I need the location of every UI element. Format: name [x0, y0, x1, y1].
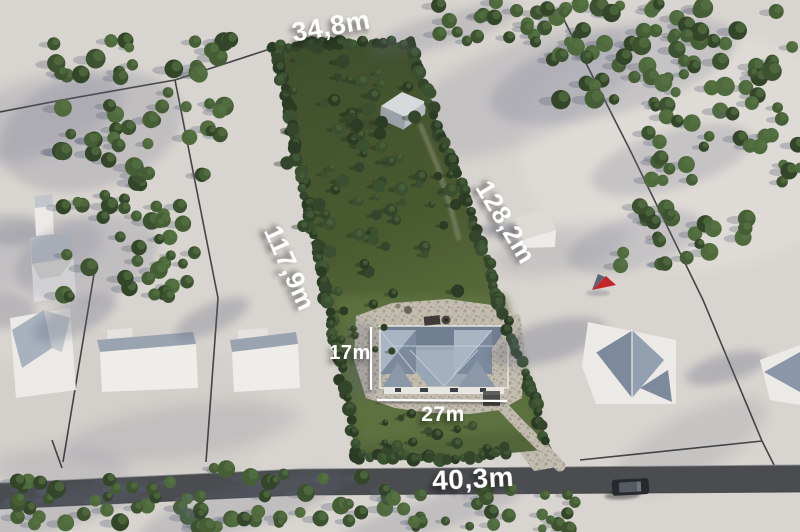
plot-bush-highlight	[334, 186, 339, 191]
tree-highlight	[708, 132, 714, 138]
plot-bush	[381, 242, 390, 251]
tree-highlight	[692, 61, 699, 68]
hedge-bush-highlight	[299, 172, 305, 178]
hedge-bush	[347, 415, 357, 425]
tree-highlight	[228, 33, 237, 42]
fire-pit-center	[444, 318, 448, 322]
plot-bush-highlight	[471, 422, 476, 427]
tree-highlight	[574, 39, 584, 49]
plot-bush	[354, 162, 364, 172]
plot-bush-highlight	[410, 410, 415, 415]
tree-highlight	[744, 81, 752, 89]
hedge-bush-highlight	[504, 325, 511, 332]
tree-highlight	[64, 516, 73, 525]
dimension-line-house-width	[377, 400, 507, 401]
plot-bush-highlight	[392, 289, 397, 294]
plot-bush	[388, 347, 395, 354]
tree-highlight	[659, 152, 667, 160]
tree-highlight	[322, 474, 328, 480]
plot-bush-highlight	[375, 194, 379, 198]
tree-highlight	[466, 37, 472, 43]
hedge-bush-highlight	[360, 36, 366, 42]
tree-highlight	[658, 235, 665, 242]
hedge-bush-highlight	[463, 185, 469, 191]
dimension-label-road: 40,3m	[431, 461, 514, 496]
tree-highlight	[731, 108, 739, 116]
garden-rock	[396, 304, 401, 309]
hedge-bush-highlight	[466, 197, 471, 202]
tree-highlight	[347, 499, 353, 505]
hedge-bush-highlight	[354, 439, 360, 445]
hedge-bush-highlight	[411, 454, 419, 462]
tree-highlight	[525, 23, 532, 30]
plot-bush	[320, 170, 328, 178]
hedge-bush-highlight	[454, 455, 459, 460]
tree-highlight	[645, 58, 655, 68]
tree-highlight	[101, 212, 108, 219]
tree-highlight	[194, 36, 201, 43]
tree-highlight	[664, 201, 673, 210]
tree-highlight	[359, 506, 367, 514]
tree-highlight	[438, 28, 446, 36]
tree-highlight	[745, 211, 755, 221]
tree-highlight	[750, 97, 758, 105]
tree-highlight	[273, 476, 279, 482]
plot-bush	[339, 306, 348, 315]
tree-highlight	[392, 492, 400, 500]
tree-highlight	[89, 134, 97, 142]
tree-highlight	[54, 56, 64, 66]
tree-highlight	[585, 52, 591, 58]
tree-highlight	[754, 59, 763, 68]
tree-highlight	[155, 201, 161, 207]
tree-highlight	[668, 210, 675, 217]
plot-bush	[375, 116, 388, 129]
plot-bush-highlight	[292, 87, 296, 91]
tree-highlight	[65, 250, 71, 256]
plot-bush-highlight	[399, 184, 406, 191]
tree-highlight	[613, 95, 619, 101]
hedge-bush-highlight	[329, 320, 334, 325]
plot-bush-highlight	[435, 430, 441, 436]
tree-highlight	[735, 23, 745, 33]
tree-highlight	[123, 194, 129, 200]
tree-highlight	[707, 244, 717, 254]
tree-highlight	[544, 491, 549, 496]
tree-highlight	[546, 2, 554, 10]
plot-bush	[362, 102, 376, 116]
hedge-bush-highlight	[528, 386, 535, 393]
tree-highlight	[609, 5, 619, 15]
hedge-bush-highlight	[330, 329, 336, 335]
plot-bush-highlight	[301, 222, 307, 228]
garden-rock	[404, 306, 412, 314]
plot-bush-highlight	[363, 151, 367, 155]
tree-highlight	[534, 37, 540, 43]
hedge-bush-highlight	[351, 40, 357, 46]
hedge-bush	[541, 436, 550, 445]
plot-bush-highlight	[380, 81, 384, 85]
tree-highlight	[132, 159, 142, 169]
tree-highlight	[119, 232, 125, 238]
tree-highlight	[153, 289, 160, 296]
tree-highlight	[479, 11, 486, 18]
tree-highlight	[61, 200, 69, 208]
window	[395, 388, 401, 392]
tree-highlight	[541, 525, 546, 530]
tree-highlight	[61, 144, 71, 154]
tree-highlight	[774, 5, 782, 13]
tree-highlight	[622, 248, 629, 255]
hedge-bush-highlight	[278, 40, 284, 46]
tree-highlight	[650, 173, 659, 182]
tree-highlight	[751, 68, 757, 74]
plot-bush	[320, 99, 329, 108]
tree-highlight	[683, 56, 690, 63]
plot-bush-highlight	[330, 164, 334, 168]
plot-bush-highlight	[379, 142, 385, 148]
tree-highlight	[560, 49, 567, 56]
plot-bush	[368, 234, 379, 245]
hedge-bush	[537, 420, 547, 430]
tree-highlight	[17, 494, 24, 501]
plot-bush-highlight	[371, 90, 378, 97]
tree-highlight	[619, 259, 627, 267]
tree-highlight	[563, 8, 569, 14]
hedge-bush-highlight	[442, 143, 448, 149]
plot-bush	[286, 123, 299, 136]
tree-highlight	[93, 50, 104, 61]
tree-highlight	[684, 157, 693, 166]
plot-bush-highlight	[354, 332, 358, 336]
plot-bush	[434, 172, 443, 181]
tree-highlight	[738, 131, 747, 140]
plot-bush-highlight	[431, 201, 435, 205]
tree-highlight	[91, 146, 100, 155]
plot-bush-highlight	[411, 438, 416, 443]
tree-highlight	[661, 75, 671, 85]
tree-highlight	[114, 483, 120, 489]
tree-highlight	[28, 502, 36, 510]
plot-bush-highlight	[449, 171, 453, 175]
hedge-bush-highlight	[416, 67, 424, 75]
tree-highlight	[658, 136, 666, 144]
hedge-bush-highlight	[479, 244, 486, 251]
tree-highlight	[69, 130, 75, 136]
tree-highlight	[568, 37, 574, 43]
tree-highlight	[135, 502, 142, 509]
tree-highlight	[205, 519, 214, 528]
tree-highlight	[199, 491, 206, 498]
tree-highlight	[711, 222, 720, 231]
tree-highlight	[263, 491, 270, 498]
dimension-label-house-depth: 17m	[329, 342, 371, 364]
tree-highlight	[507, 510, 515, 518]
tree-highlight	[16, 475, 25, 484]
tree-highlight	[37, 511, 44, 518]
hedge-bush	[425, 453, 435, 463]
tree-highlight	[756, 88, 765, 97]
tree-highlight	[218, 128, 226, 136]
tree-highlight	[127, 121, 135, 129]
tree-highlight	[685, 18, 695, 28]
plot-bush-highlight	[337, 288, 342, 293]
tree-highlight	[776, 103, 782, 109]
tree-highlight	[171, 61, 181, 71]
plot-bush-highlight	[324, 210, 329, 215]
hedge-bush-highlight	[491, 281, 496, 286]
tree-highlight	[38, 477, 46, 485]
tree-highlight	[147, 168, 154, 175]
plot-bush	[351, 119, 363, 131]
plot-bush	[374, 128, 386, 140]
plot-bush-highlight	[385, 420, 388, 423]
tree-highlight	[146, 139, 152, 145]
tree-highlight	[676, 116, 683, 123]
plot-bush	[439, 221, 448, 230]
tree-highlight	[76, 198, 82, 204]
tree-highlight	[619, 1, 625, 7]
tree-highlight	[131, 482, 138, 489]
hedge-bush-highlight	[352, 427, 357, 432]
tree-highlight	[600, 74, 608, 82]
tree-highlight	[128, 43, 134, 49]
tree-highlight	[347, 515, 354, 522]
plot-bush	[370, 228, 378, 236]
tree-highlight	[638, 199, 647, 208]
tree-highlight	[758, 140, 766, 148]
tree-highlight	[169, 251, 175, 257]
plot-bush-highlight	[332, 96, 338, 102]
hedge-bush-highlight	[301, 184, 306, 189]
dimension-label-house-width: 27m	[421, 403, 465, 426]
tree-highlight	[213, 464, 219, 470]
tree-highlight	[168, 231, 176, 239]
tree-highlight	[668, 164, 675, 171]
plot-bush-highlight	[357, 230, 363, 236]
tree-highlight	[654, 25, 661, 32]
house	[380, 326, 508, 394]
plot-bush	[450, 199, 461, 210]
tree-highlight	[123, 271, 132, 280]
tree-highlight	[107, 198, 117, 208]
hedge-bush-highlight	[490, 272, 497, 279]
hedge-bush-highlight	[361, 449, 366, 454]
plot-bush	[295, 53, 308, 66]
tree-highlight	[476, 31, 483, 38]
tree-highlight	[123, 203, 130, 210]
tree-highlight	[652, 216, 660, 224]
hedge-bush-highlight	[434, 121, 441, 128]
tree-highlight	[444, 517, 449, 522]
hedge-bush	[429, 111, 438, 120]
tree-highlight	[661, 176, 667, 182]
tree-highlight	[79, 67, 89, 77]
plot-bush	[312, 198, 326, 212]
tree-highlight	[592, 90, 603, 101]
hedge-bush-highlight	[488, 258, 494, 264]
plot-bush-highlight	[423, 242, 429, 248]
hedge-bush-highlight	[495, 297, 503, 305]
hedge-bush	[316, 266, 327, 277]
tree-highlight	[147, 273, 154, 280]
plot-bush-highlight	[398, 154, 402, 158]
plot-bush	[415, 180, 423, 188]
tree-highlight	[167, 88, 173, 94]
plot-bush	[451, 285, 464, 298]
tree-highlight	[318, 512, 327, 521]
tree-highlight	[193, 247, 200, 254]
tree-highlight	[185, 276, 192, 283]
tree-highlight	[282, 469, 288, 475]
tree-highlight	[118, 515, 128, 525]
tree-highlight	[55, 482, 65, 492]
tree-highlight	[123, 34, 132, 43]
tree-highlight	[197, 67, 206, 76]
tree-highlight	[108, 100, 115, 107]
hedge-bush-highlight	[536, 407, 541, 412]
tree-highlight	[566, 490, 572, 496]
tree-highlight	[117, 139, 125, 147]
tree-highlight	[33, 519, 40, 526]
tree-highlight	[169, 477, 176, 484]
car-windshield	[637, 481, 642, 491]
tree-highlight	[208, 99, 214, 105]
tree-highlight	[402, 503, 409, 510]
plot-bush-highlight	[327, 219, 334, 226]
plot-bush-highlight	[349, 76, 353, 80]
tree-highlight	[718, 104, 727, 113]
tree-highlight	[105, 504, 112, 511]
tree-highlight	[149, 112, 158, 121]
hedge-bush-highlight	[292, 154, 300, 162]
tree-highlight	[698, 240, 704, 246]
tree-highlight	[59, 67, 66, 74]
plot-bush-highlight	[486, 445, 490, 449]
plot-bush-highlight	[377, 70, 381, 74]
tree-highlight	[532, 30, 539, 37]
tree-highlight	[210, 126, 216, 132]
tree-highlight	[685, 252, 693, 260]
tree-highlight	[215, 522, 222, 529]
tree-highlight	[515, 5, 522, 12]
tree-highlight	[103, 191, 109, 197]
tree-highlight	[665, 98, 674, 107]
tree-highlight	[119, 71, 128, 80]
tree-highlight	[242, 513, 250, 521]
tree-highlight	[674, 88, 680, 94]
plot-bush-highlight	[456, 426, 460, 430]
plot-bush-highlight	[395, 442, 401, 448]
tree-highlight	[581, 23, 590, 32]
tree-highlight	[158, 235, 164, 241]
tree-highlight	[780, 113, 788, 121]
marker-shadow	[586, 290, 610, 296]
tree-highlight	[182, 259, 188, 265]
tree-highlight	[131, 60, 137, 66]
tree-highlight	[791, 42, 798, 49]
plot-bush-highlight	[389, 157, 394, 162]
tree-highlight	[107, 153, 116, 162]
plot-bush	[280, 156, 294, 170]
hedge-bush-highlight	[346, 394, 350, 398]
plot-bush-highlight	[363, 260, 368, 265]
plot-bush	[500, 442, 510, 452]
hedge-bush-highlight	[469, 207, 474, 212]
outdoor-furniture	[424, 315, 441, 326]
tree-highlight	[108, 474, 115, 481]
plot-bush	[421, 250, 429, 258]
window	[420, 388, 428, 392]
plot-bush	[285, 67, 293, 75]
tree-highlight	[647, 127, 655, 135]
tree-highlight	[712, 35, 720, 43]
plot-bush-highlight	[357, 197, 362, 202]
plot-bush-highlight	[419, 172, 425, 178]
window	[450, 388, 458, 392]
tree-highlight	[82, 508, 90, 516]
tree-highlight	[541, 509, 547, 515]
tree-highlight	[87, 260, 97, 270]
tree-highlight	[383, 485, 390, 492]
hedge-bush-highlight	[460, 178, 466, 184]
tree-highlight	[158, 218, 164, 224]
tree-highlight	[135, 211, 141, 217]
hedge-bush-highlight	[307, 210, 314, 217]
tree-highlight	[593, 80, 600, 87]
tree-highlight	[256, 506, 264, 514]
tree-highlight	[187, 131, 196, 140]
tree-highlight	[68, 292, 74, 298]
hedge-bush-highlight	[449, 154, 457, 162]
tree-highlight	[178, 200, 186, 208]
tree-highlight	[114, 123, 121, 130]
aerial-plot-render: 34,8m 117,9m 128,2m 17m 27m 40,3m	[0, 0, 800, 532]
tree-highlight	[248, 469, 258, 479]
tree-highlight	[549, 516, 554, 521]
plot-bush-highlight	[406, 83, 411, 88]
plot-bush	[398, 415, 405, 422]
plot-bush-highlight	[336, 125, 342, 131]
tree-highlight	[299, 508, 305, 514]
plot-bush	[399, 199, 407, 207]
tree-highlight	[151, 484, 158, 491]
tree-highlight	[185, 102, 191, 108]
tree-highlight	[573, 497, 579, 503]
tree-highlight	[642, 24, 651, 33]
plot-bush	[371, 210, 381, 220]
plot-bush-highlight	[384, 440, 387, 443]
tree-highlight	[224, 462, 234, 472]
tree-highlight	[664, 110, 672, 118]
hedge-bush-highlight	[535, 399, 542, 406]
tree-highlight	[278, 519, 284, 525]
tree-highlight	[744, 222, 752, 230]
tree-highlight	[567, 523, 576, 532]
tree-highlight	[763, 130, 771, 138]
tree-highlight	[770, 63, 781, 74]
plot-bush-highlight	[449, 185, 456, 192]
hedge-bush-highlight	[312, 231, 317, 236]
plot-bush-highlight	[394, 216, 399, 221]
plot-bush-highlight	[455, 439, 461, 445]
plot-bush	[373, 180, 385, 192]
tree-highlight	[136, 256, 143, 263]
tree-highlight	[685, 30, 692, 37]
tree-highlight	[210, 44, 219, 53]
hedge-bush-highlight	[277, 75, 283, 81]
hedge-bush	[346, 408, 354, 416]
